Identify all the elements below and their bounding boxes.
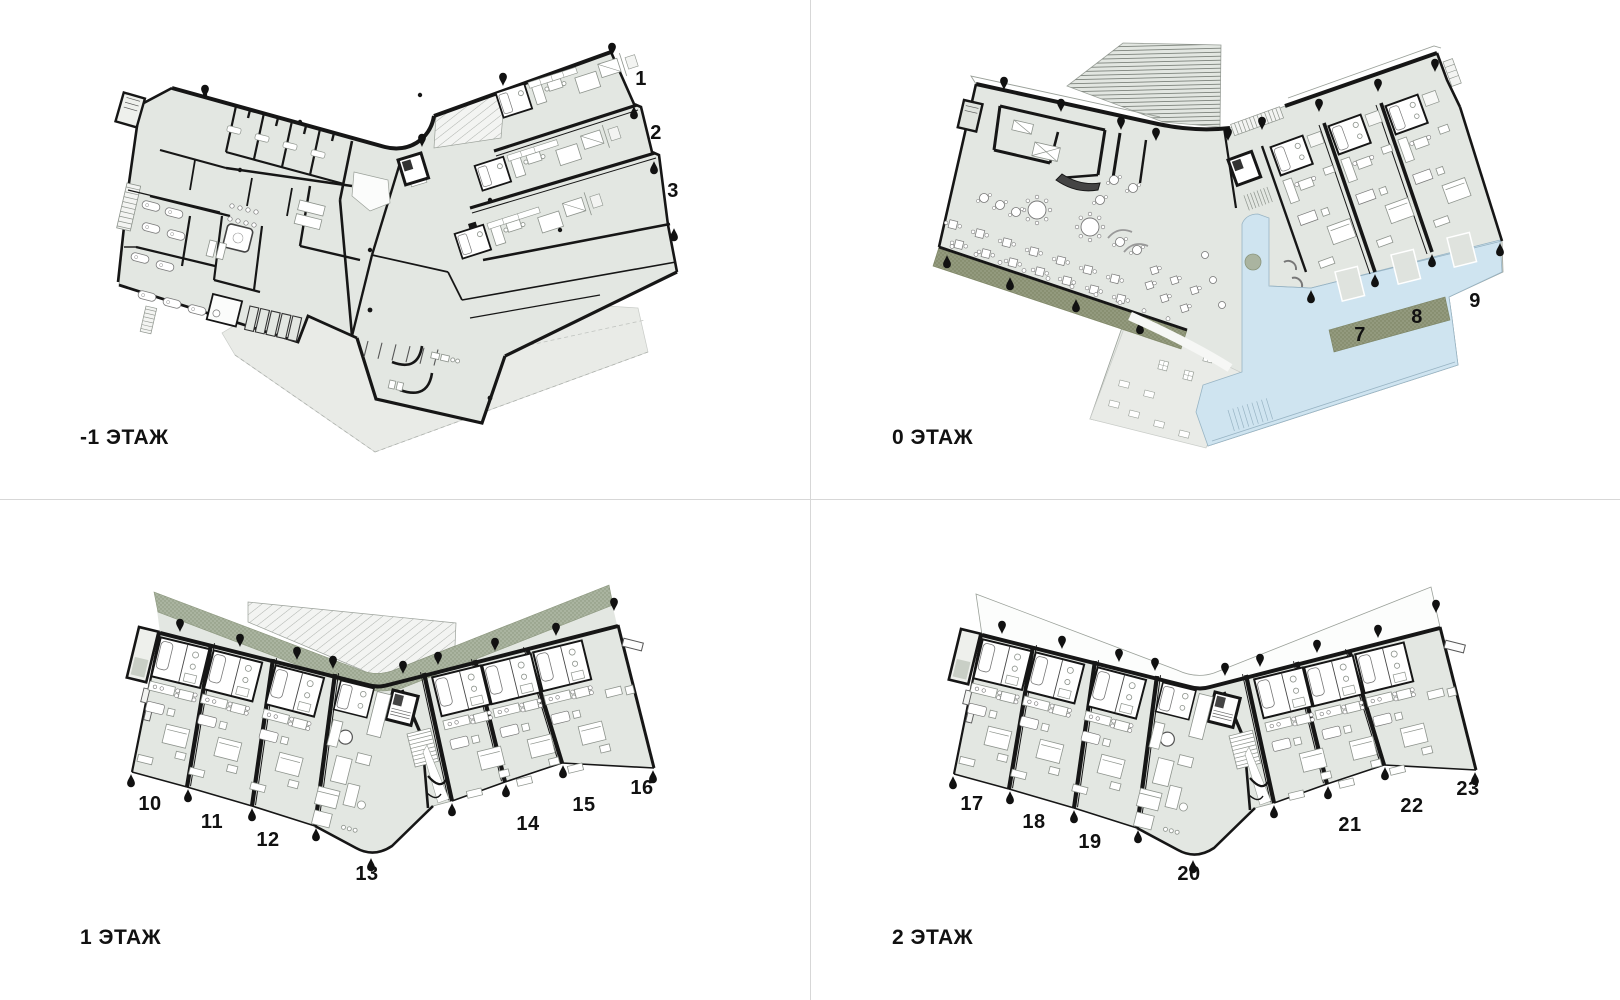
- svg-text:23: 23: [1456, 778, 1479, 800]
- svg-text:13: 13: [355, 863, 378, 885]
- svg-text:20: 20: [1177, 863, 1200, 885]
- svg-text:2 ЭТАЖ: 2 ЭТАЖ: [892, 926, 974, 949]
- svg-text:9: 9: [1469, 290, 1481, 312]
- svg-text:0 ЭТАЖ: 0 ЭТАЖ: [892, 426, 974, 449]
- svg-text:18: 18: [1022, 811, 1045, 833]
- svg-text:1 ЭТАЖ: 1 ЭТАЖ: [80, 926, 162, 949]
- svg-text:11: 11: [201, 811, 223, 833]
- svg-text:-1 ЭТАЖ: -1 ЭТАЖ: [80, 426, 169, 449]
- svg-text:12: 12: [256, 829, 279, 851]
- svg-text:21: 21: [1338, 814, 1361, 836]
- svg-text:3: 3: [667, 180, 679, 202]
- svg-text:14: 14: [516, 813, 540, 835]
- svg-text:19: 19: [1078, 831, 1101, 853]
- svg-text:10: 10: [138, 793, 161, 815]
- svg-text:16: 16: [630, 777, 653, 799]
- svg-text:22: 22: [1400, 795, 1423, 817]
- svg-text:1: 1: [635, 68, 647, 90]
- svg-text:15: 15: [572, 794, 595, 816]
- svg-text:8: 8: [1411, 306, 1423, 328]
- svg-text:7: 7: [1354, 324, 1366, 346]
- svg-text:2: 2: [650, 122, 662, 144]
- svg-text:17: 17: [960, 793, 983, 815]
